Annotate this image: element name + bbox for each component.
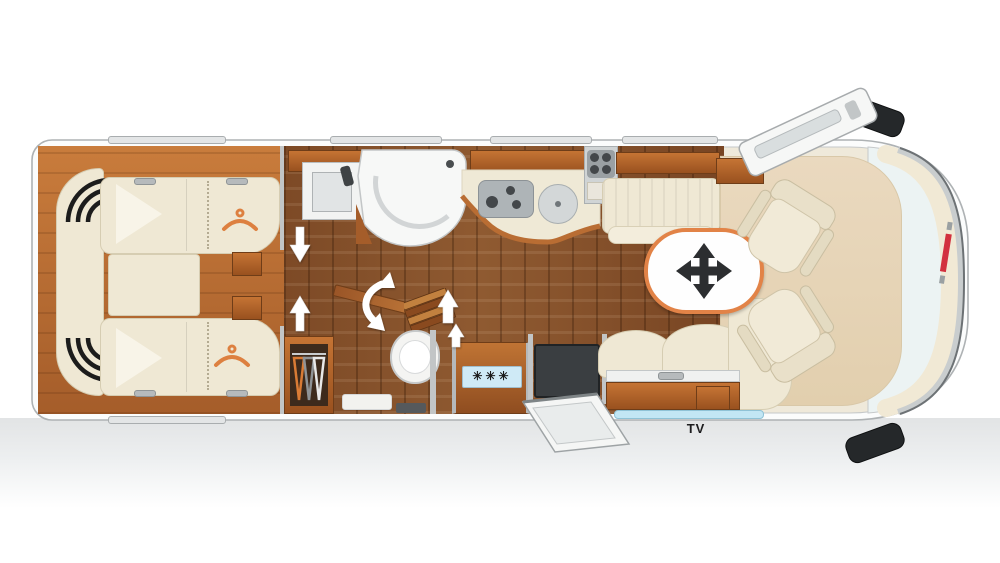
- habitation-door-open-top: [737, 86, 879, 178]
- door-swing-arrow-up-3: [448, 324, 464, 347]
- door-swing-arrow-down: [290, 227, 310, 262]
- door-swing-arrow-up-2: [438, 290, 458, 323]
- overlay-layer: [0, 0, 1000, 563]
- door-swing-curved-arrow-icon: [366, 272, 395, 331]
- side-mirror-icon-bottom: [843, 421, 906, 465]
- entry-door-open-bottom: [523, 394, 629, 452]
- door-swing-arrow-up: [290, 296, 310, 331]
- motorhome-floorplan: ✳✳✳ TV: [0, 0, 1000, 563]
